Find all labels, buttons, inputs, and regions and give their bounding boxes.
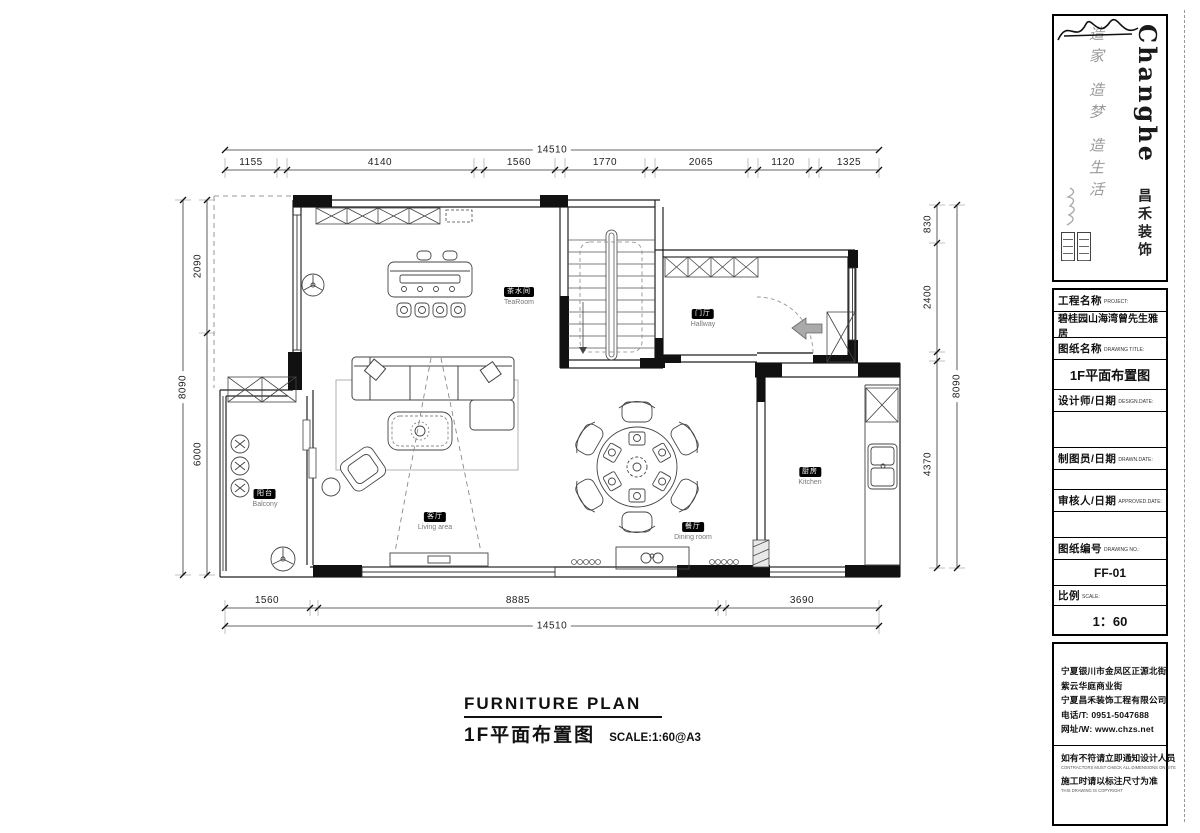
- plan-scale-note: SCALE:1:60@A3: [609, 732, 701, 747]
- drawing-title-label: 图纸名称: [1058, 341, 1102, 356]
- entry-arrow-icon: [792, 318, 822, 339]
- room-tag: 阳台: [254, 489, 276, 499]
- dim-right-overall: 8090: [952, 370, 963, 402]
- number-label-en: DRAWING NO.:: [1104, 547, 1140, 553]
- drawing-number: FF-01: [1054, 560, 1166, 586]
- room-eng: Hallway: [691, 321, 716, 329]
- company-name: 宁夏昌禾装饰工程有限公司: [1061, 693, 1159, 708]
- entry-door: [757, 297, 822, 353]
- dim-bottom-2: 8885: [506, 595, 530, 606]
- room-eng: Living area: [418, 524, 452, 532]
- dim-bottom-overall: 14510: [533, 621, 571, 632]
- drafter-label-row: 制图员/日期 DRAWN.DATE:: [1054, 448, 1166, 470]
- room-label-dining: 餐厅 Dining room: [674, 515, 712, 542]
- project-label-en: PROJECT:: [1104, 299, 1128, 305]
- drafter-value-empty: [1054, 470, 1166, 490]
- dining-set: [571, 402, 702, 533]
- dim-top-7: 1325: [837, 157, 861, 168]
- sheet-fold-line: [1184, 10, 1185, 822]
- dim-top-2: 4140: [368, 157, 392, 168]
- dim-top-overall: 14510: [533, 145, 571, 156]
- logo-box: Changhe 昌禾装饰 造家 造梦 造生活: [1052, 14, 1168, 282]
- dim-left-2: 6000: [193, 442, 204, 466]
- room-eng: Dining room: [674, 534, 712, 542]
- divider: [1054, 745, 1166, 746]
- approver-label-row: 审核人/日期 APPROVED.DATE:: [1054, 490, 1166, 512]
- dim-right-1: 830: [923, 215, 934, 233]
- scale-label-en: SCALE:: [1082, 594, 1100, 600]
- accent-chair: [322, 444, 388, 496]
- brand-motto: 造家 造梦 造生活: [1086, 26, 1107, 204]
- dim-left-1: 2090: [193, 254, 204, 278]
- tv-bench: [390, 553, 488, 566]
- notice-2: 施工时请以标注尺寸为准: [1061, 775, 1159, 787]
- cabinets: [228, 208, 898, 567]
- scale-value: 1：60: [1054, 606, 1166, 634]
- number-label-row: 图纸编号 DRAWING NO.:: [1054, 538, 1166, 560]
- room-label-tearoom: 茶水间 TeaRoom: [504, 280, 534, 307]
- designer-label-row: 设计师/日期 DESIGN.DATE:: [1054, 390, 1166, 412]
- scale-label-row: 比例 SCALE:: [1054, 586, 1166, 606]
- room-eng: Kitchen: [798, 479, 821, 487]
- dim-left-overall: 8090: [178, 371, 189, 403]
- dim-top-5: 2065: [689, 157, 713, 168]
- dim-right-2: 2400: [923, 285, 934, 309]
- approver-label-en: APPROVED.DATE:: [1118, 499, 1162, 505]
- room-eng: Balcony: [253, 501, 278, 509]
- scale-label: 比例: [1058, 588, 1080, 603]
- dim-top-3: 1560: [507, 157, 531, 168]
- dim-top-6: 1120: [771, 157, 795, 168]
- balcony-slider: [303, 420, 316, 478]
- tea-table: [388, 251, 472, 317]
- plan-title-cn: 1F平面布置图: [464, 720, 595, 747]
- room-tag: 门厅: [692, 309, 714, 319]
- room-label-kitchen: 厨房 Kitchen: [798, 460, 821, 487]
- notice-1-en: CONTRACTORS MUST CHECK ALL DIMENSIONS ON…: [1061, 764, 1159, 771]
- dim-top-4: 1770: [593, 157, 617, 168]
- signature-icon: [1052, 14, 1148, 46]
- wall-clock: [302, 274, 324, 296]
- drafter-label-en: DRAWN.DATE:: [1118, 457, 1152, 463]
- seal-stamps-icon: [1061, 232, 1091, 261]
- company-phone: 电话/T: 0951-5047688: [1061, 708, 1159, 723]
- company-address-2: 紫云华庭商业街: [1061, 679, 1159, 694]
- staircase: [568, 230, 655, 360]
- room-label-balcony: 阳台 Balcony: [253, 482, 278, 509]
- approver-label: 审核人/日期: [1058, 493, 1116, 508]
- room-eng: TeaRoom: [504, 299, 534, 307]
- living-room-furniture: [322, 357, 518, 566]
- plan-title: FURNITURE PLAN 1F平面布置图 SCALE:1:60@A3: [464, 694, 701, 747]
- project-name: 碧桂园山海湾曾先生雅居: [1054, 312, 1166, 338]
- designer-label-en: DESIGN.DATE:: [1118, 399, 1153, 405]
- room-label-living: 客厅 Living area: [418, 505, 452, 532]
- plan-title-en: FURNITURE PLAN: [464, 694, 662, 718]
- notice-2-en: THIS DRAWING IS COPYRIGHT: [1061, 787, 1159, 794]
- dim-top-1: 1155: [239, 157, 263, 168]
- room-tag: 客厅: [424, 512, 446, 522]
- project-label: 工程名称: [1058, 293, 1102, 308]
- room-tag: 餐厅: [682, 522, 704, 532]
- room-label-hallway: 门厅 Hallway: [691, 302, 716, 329]
- designer-signature: [1054, 412, 1166, 448]
- walls: [220, 200, 900, 577]
- room-tag: 茶水间: [504, 287, 534, 297]
- company-box: 宁夏银川市金凤区正源北街 紫云华庭商业街 宁夏昌禾装饰工程有限公司 电话/T: …: [1052, 642, 1168, 826]
- approver-value-empty: [1054, 512, 1166, 538]
- room-tag: 厨房: [799, 467, 821, 477]
- dim-bottom-1: 1560: [255, 595, 279, 606]
- drawing-sheet: 1155 4140 1560 1770 2065 1120 1325 14510…: [0, 0, 1200, 833]
- kitchen-counter: [865, 385, 900, 565]
- title-block: Changhe 昌禾装饰 造家 造梦 造生活 工程名称 PROJECT: 碧桂园…: [1052, 14, 1168, 826]
- calligraphy-script-icon: [1062, 184, 1086, 228]
- drafter-label: 制图员/日期: [1058, 451, 1116, 466]
- drawing-title-label-en: DRAWING TITLE:: [1104, 347, 1144, 353]
- dim-bottom-3: 3690: [790, 595, 814, 606]
- seal-stamp-icon: [1061, 232, 1075, 261]
- company-website: 网址/W: www.chzs.net: [1061, 722, 1159, 737]
- number-label: 图纸编号: [1058, 541, 1102, 556]
- coffee-table: [388, 412, 452, 450]
- designer-label: 设计师/日期: [1058, 393, 1116, 408]
- drawing-title-value: 1F平面布置图: [1054, 360, 1166, 390]
- fields-box: 工程名称 PROJECT: 碧桂园山海湾曾先生雅居 图纸名称 DRAWING T…: [1052, 288, 1168, 636]
- seal-stamp-icon: [1077, 232, 1091, 261]
- company-address-1: 宁夏银川市金凤区正源北街: [1061, 664, 1159, 679]
- notice-1: 如有不符请立即通知设计人员: [1061, 752, 1159, 764]
- drawing-title-label-row: 图纸名称 DRAWING TITLE:: [1054, 338, 1166, 360]
- sofa: [352, 357, 514, 430]
- brand-name-cn: 昌禾装饰: [1135, 188, 1155, 260]
- dim-right-3: 4370: [923, 452, 934, 476]
